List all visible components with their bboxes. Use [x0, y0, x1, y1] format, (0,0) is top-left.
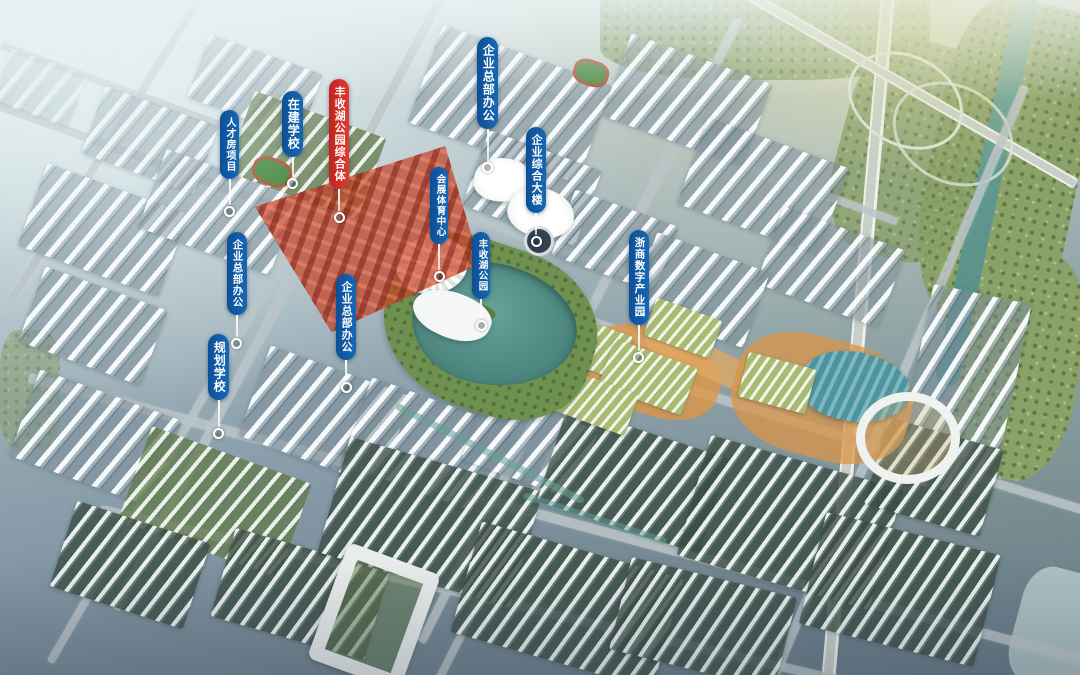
pin-dot: [287, 178, 298, 189]
pin-stem: [338, 189, 340, 211]
pin-label: 规划学校: [208, 334, 229, 400]
pin-stem: [345, 360, 347, 381]
pin-stem: [638, 325, 640, 351]
haze-top-left: [0, 0, 420, 300]
pin-stem: [236, 315, 238, 337]
pin-stem: [487, 129, 489, 161]
map-pin-convention-sports-center: 会展体育中心: [430, 167, 448, 282]
pin-dot: [476, 320, 487, 331]
pin-dot: [531, 236, 542, 247]
map-pin-fengshou-lake-park-complex: 丰收湖公园综合体: [329, 79, 349, 223]
map-pin-zheshang-digital-industry-park: 浙商数字产业园: [629, 230, 649, 363]
pin-dot: [434, 271, 445, 282]
pin-dot: [341, 382, 352, 393]
pin-stem: [535, 213, 537, 235]
pin-label: 人才房项目: [220, 110, 239, 179]
vignette-bottom: [0, 560, 1080, 675]
pin-label: 会展体育中心: [430, 167, 448, 244]
pin-label: 企业综合大楼: [526, 127, 546, 213]
map-pin-fengshou-lake-park: 丰收湖公园: [472, 232, 490, 331]
pin-stem: [292, 157, 294, 177]
east-complex-ring-building: [856, 392, 960, 484]
pin-dot: [231, 338, 242, 349]
map-pin-enterprise-complex-tower: 企业综合大楼: [526, 127, 546, 247]
pin-label: 丰收湖公园综合体: [329, 79, 349, 189]
map-pin-talent-housing-project: 人才房项目: [220, 110, 239, 217]
aerial-masterplan-rendering: 企业总部办公 在建学校 丰收湖公园综合体 人才房项目 企业综合大楼 会展体育中心…: [0, 0, 1080, 675]
pin-dot: [633, 352, 644, 363]
pin-stem: [218, 400, 220, 427]
pin-stem: [229, 179, 231, 205]
haze-top-right: [700, 0, 1080, 180]
pin-stem: [480, 299, 482, 319]
pin-label: 在建学校: [282, 91, 303, 157]
pin-dot: [224, 206, 235, 217]
map-pin-enterprise-hq-north: 企业总部办公: [477, 37, 498, 173]
pin-label: 企业总部办公: [227, 232, 247, 315]
pin-dot: [482, 162, 493, 173]
pin-stem: [438, 244, 440, 270]
map-pin-school-under-construction: 在建学校: [282, 91, 303, 189]
pin-label: 企业总部办公: [336, 274, 356, 360]
pin-dot: [334, 212, 345, 223]
map-pin-enterprise-hq-west: 企业总部办公: [227, 232, 247, 349]
pin-label: 浙商数字产业园: [629, 230, 649, 325]
pin-label: 企业总部办公: [477, 37, 498, 129]
map-pin-enterprise-hq-central: 企业总部办公: [336, 274, 356, 393]
pin-dot: [213, 428, 224, 439]
map-pin-planned-school: 规划学校: [208, 334, 229, 439]
pin-label: 丰收湖公园: [472, 232, 490, 299]
